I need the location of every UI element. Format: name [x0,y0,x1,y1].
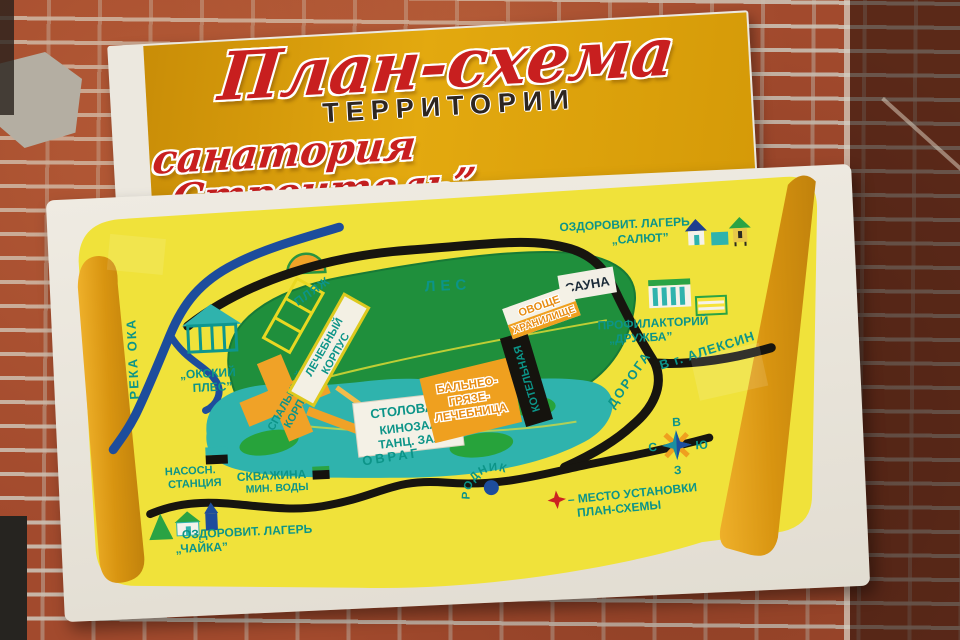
profilaktoriy-label-line2: „ДРУЖБА” [609,329,673,346]
forest-label: ЛЕС [425,276,472,295]
tape-strip [107,234,166,275]
pump-station-icon [205,447,228,465]
map-board: СПАЛЬНЫЙ КОРПУС ЛЕЧЕБНЫЙ КОРПУС СТОЛОВАЯ… [46,164,870,622]
left-shadow [0,0,14,115]
compass-left: С [648,440,658,454]
nasos-line2: СТАНЦИЯ [168,477,222,491]
compass-bottom: З [674,463,682,477]
map-drawing: СПАЛЬНЫЙ КОРПУС ЛЕЧЕБНЫЙ КОРПУС СТОЛОВАЯ… [46,164,870,622]
well-icon [312,466,330,480]
bottom-left-shadow [0,516,27,640]
compass-top: В [672,415,682,429]
chaika-label-line2: „ЧАЙКА” [175,539,228,556]
okskiy-ples-line2: ПЛЕС” [192,379,232,395]
nasos-line1: НАСОСН. [165,464,216,478]
salut-label-line2: „САЛЮТ” [611,230,669,247]
photo-of-map-sign: { "banner": { "title": "План-схема", "su… [0,0,960,640]
compass-right: Ю [695,438,708,453]
